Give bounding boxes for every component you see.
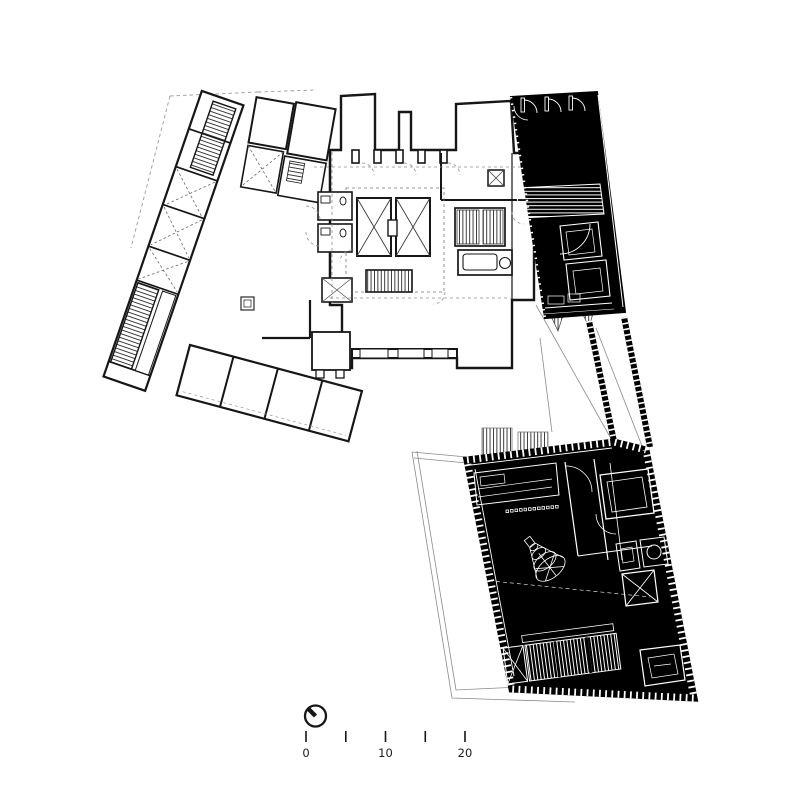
floor-plan-drawing: 0 10 20 [0, 0, 800, 800]
toilet-rooms [318, 192, 352, 302]
floor-plan-sheet: 0 10 20 [0, 0, 800, 800]
northwest-cluster [240, 95, 335, 202]
scale-label-20: 20 [458, 746, 473, 760]
tower-stair [516, 184, 604, 218]
scale-label-10: 10 [378, 746, 393, 760]
window-bays [352, 349, 457, 358]
scale-label-0: 0 [302, 746, 309, 760]
core-stair [366, 270, 412, 292]
